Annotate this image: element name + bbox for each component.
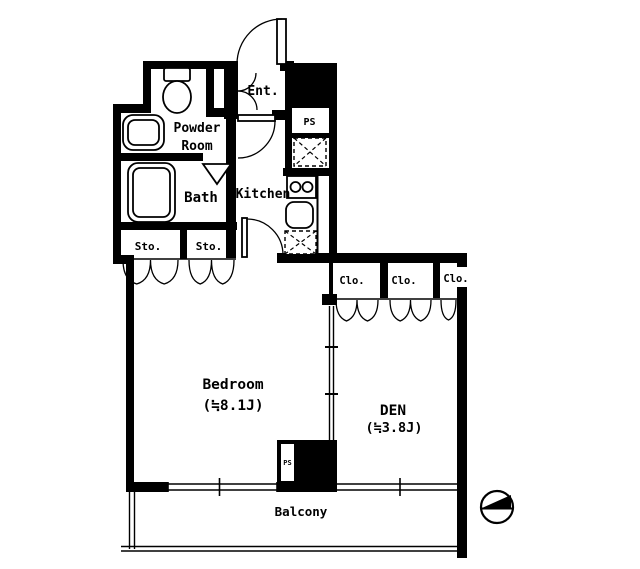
pipe-space-top-label: PS bbox=[303, 117, 315, 128]
room-label-den: DEN bbox=[380, 403, 406, 419]
appliance-space bbox=[285, 231, 316, 254]
bedroom-door-leaf bbox=[242, 218, 247, 257]
kitchen-sink bbox=[286, 202, 313, 228]
closet3-bifold-door bbox=[441, 300, 456, 320]
room-label-kitchen: Kitchen bbox=[236, 187, 291, 202]
pipe-space-bottom-label: PS bbox=[283, 459, 291, 467]
bathtub-inner bbox=[133, 168, 170, 217]
room-label-closet-3: Clo. bbox=[443, 273, 468, 285]
toilet-bowl bbox=[163, 81, 191, 113]
storage2-bifold-door bbox=[189, 260, 234, 284]
room-label-balcony: Balcony bbox=[275, 504, 328, 519]
hall-door-swing bbox=[238, 121, 275, 158]
toilet-tank bbox=[164, 68, 190, 81]
room-label-bath: Bath bbox=[184, 190, 218, 206]
room-label-powder-1: Powder bbox=[174, 121, 221, 136]
room-label-bedroom: Bedroom bbox=[202, 377, 263, 393]
room-size-bedroom: (≒8.1J) bbox=[202, 398, 263, 414]
room-label-entrance: Ent. bbox=[247, 84, 278, 99]
stove-burner bbox=[303, 182, 313, 192]
room-size-den: (≒3.8J) bbox=[366, 420, 423, 436]
washbasin-inner bbox=[128, 120, 159, 145]
room-label-storage-2: Sto. bbox=[196, 240, 223, 253]
floor-plan-page: Ent. ShoeBox Powder Room Bath Kitchen St… bbox=[0, 0, 640, 569]
entrance-door-swing bbox=[237, 19, 282, 64]
entrance-door-leaf bbox=[277, 19, 286, 64]
room-label-closet-1: Clo. bbox=[339, 275, 364, 287]
north-arrow-icon bbox=[480, 491, 514, 523]
room-label-closet-2: Clo. bbox=[391, 275, 416, 287]
room-label-powder-2: Room bbox=[181, 139, 212, 154]
closet2-bifold-door bbox=[390, 300, 431, 321]
floor-plan-drawing: Ent. ShoeBox Powder Room Bath Kitchen St… bbox=[0, 0, 640, 569]
bedroom-door-swing bbox=[247, 219, 283, 255]
hall-door-leaf bbox=[238, 115, 275, 121]
room-label-storage-1: Sto. bbox=[135, 240, 162, 253]
room-label-shoebox: ShoeBox bbox=[224, 72, 233, 104]
closet1-bifold-door bbox=[336, 300, 378, 321]
stove-burner bbox=[291, 182, 301, 192]
balcony-outline bbox=[121, 492, 458, 551]
